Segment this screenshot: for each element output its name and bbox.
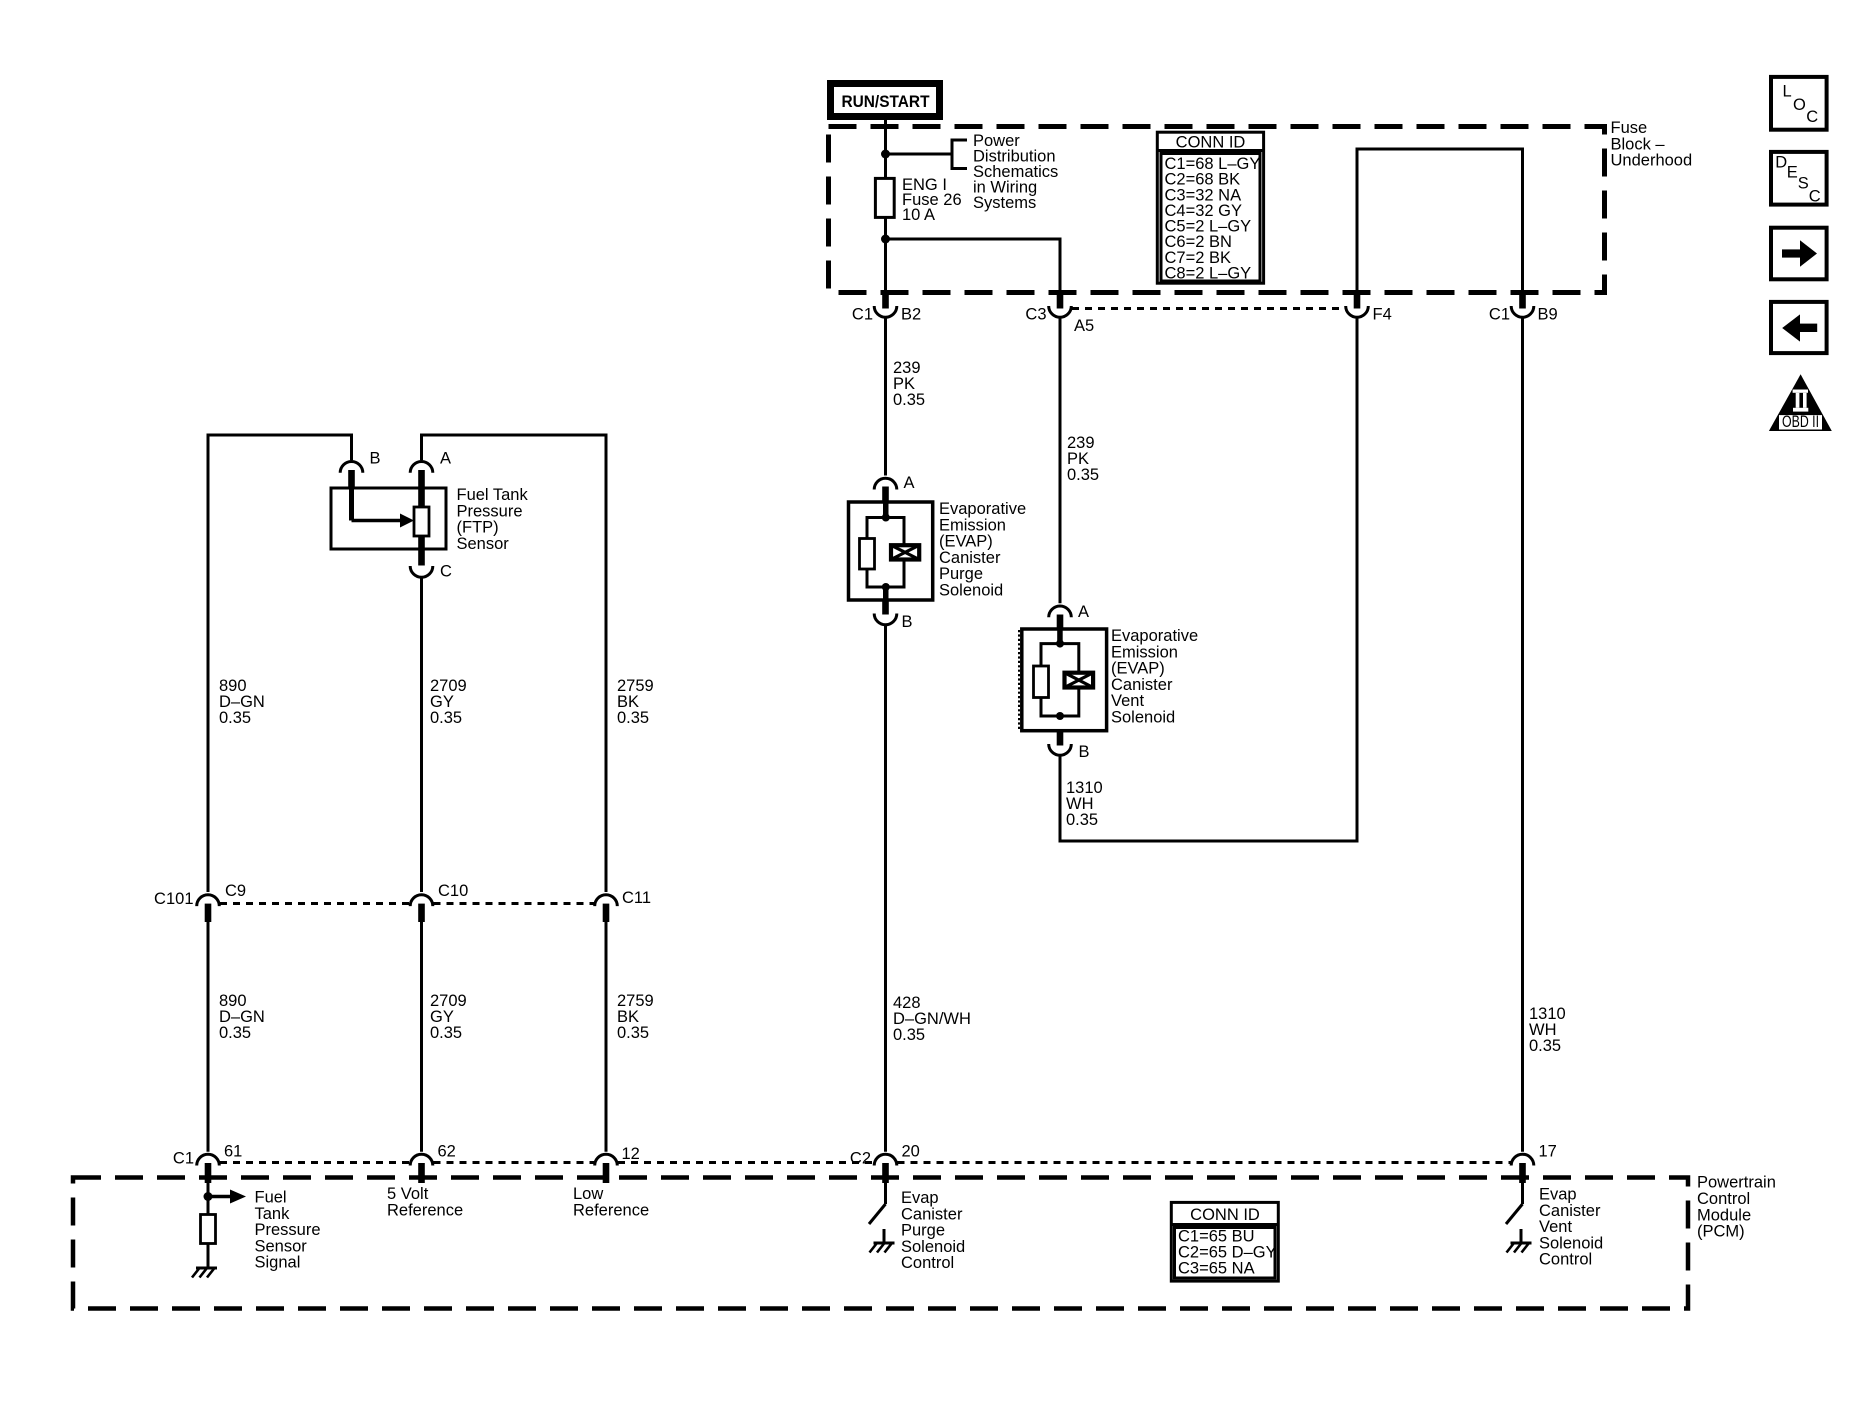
svg-text:0.35: 0.35 [617,1024,649,1042]
svg-text:Powertrain: Powertrain [1697,1174,1776,1192]
svg-text:C3=65 NA: C3=65 NA [1178,1260,1255,1278]
svg-text:D: D [1775,154,1787,172]
svg-text:Reference: Reference [573,1201,649,1219]
svg-text:O: O [1793,96,1806,114]
svg-text:Emission: Emission [1111,643,1178,661]
svg-text:F4: F4 [1373,306,1392,324]
svg-text:Tank: Tank [255,1205,291,1223]
svg-text:0.35: 0.35 [219,709,251,727]
svg-text:Solenoid: Solenoid [1111,709,1175,727]
svg-text:12: 12 [622,1145,640,1163]
svg-text:Fuse: Fuse [1611,119,1648,137]
svg-text:Module: Module [1697,1206,1751,1224]
svg-text:0.35: 0.35 [617,709,649,727]
svg-text:B: B [902,613,913,631]
svg-text:(EVAP): (EVAP) [939,533,993,551]
svg-text:Low: Low [573,1185,603,1203]
svg-text:0.35: 0.35 [1066,811,1098,829]
svg-text:Canister: Canister [1539,1202,1601,1220]
svg-text:Evap: Evap [1539,1186,1577,1204]
svg-text:Purge: Purge [901,1222,945,1240]
svg-text:62: 62 [438,1143,456,1161]
svg-text:C8=2 L–GY: C8=2 L–GY [1165,265,1252,283]
svg-text:17: 17 [1539,1143,1557,1161]
svg-text:0.35: 0.35 [1067,466,1099,484]
svg-text:C1: C1 [173,1150,194,1168]
svg-text:Pressure: Pressure [457,502,523,520]
svg-text:Canister: Canister [939,549,1001,567]
svg-text:Pressure: Pressure [255,1221,321,1239]
svg-text:5 Volt: 5 Volt [387,1185,429,1203]
svg-text:61: 61 [224,1143,242,1161]
svg-text:Purge: Purge [939,565,983,583]
svg-text:B: B [1079,743,1090,761]
svg-text:Vent: Vent [1111,692,1144,710]
svg-text:Control: Control [1539,1251,1592,1269]
svg-text:C3: C3 [1025,306,1046,324]
svg-text:C11: C11 [622,889,651,907]
svg-text:Emission: Emission [939,516,1006,534]
svg-text:Sensor: Sensor [255,1237,308,1255]
svg-text:(EVAP): (EVAP) [1111,660,1165,678]
svg-text:Sensor: Sensor [457,535,510,553]
svg-text:C9: C9 [225,882,246,900]
svg-text:C10: C10 [438,882,468,900]
svg-text:Fuel Tank: Fuel Tank [457,486,529,504]
svg-text:C: C [440,563,452,581]
svg-text:C1: C1 [852,306,873,324]
svg-text:B2: B2 [901,306,921,324]
svg-text:10 A: 10 A [902,206,935,224]
svg-text:C2: C2 [850,1150,871,1168]
svg-text:C: C [1806,108,1818,126]
svg-text:Evap: Evap [901,1189,939,1207]
svg-text:A: A [904,474,915,492]
svg-text:CONN ID: CONN ID [1190,1206,1260,1224]
svg-text:Signal: Signal [255,1254,301,1272]
svg-text:B: B [370,450,381,468]
svg-text:S: S [1798,175,1809,193]
svg-text:RUN/START: RUN/START [842,93,930,111]
svg-text:C1: C1 [1489,306,1510,324]
svg-text:CONN ID: CONN ID [1176,134,1246,152]
svg-text:Underhood: Underhood [1611,152,1693,170]
svg-text:Vent: Vent [1539,1218,1572,1236]
svg-text:Systems: Systems [973,194,1036,212]
svg-text:L: L [1783,83,1792,101]
svg-text:Control: Control [1697,1190,1750,1208]
svg-text:Evaporative: Evaporative [1111,627,1198,645]
svg-text:Block –: Block – [1611,135,1666,153]
svg-text:Canister: Canister [1111,676,1173,694]
svg-text:(FTP): (FTP) [457,519,499,537]
svg-text:0.35: 0.35 [893,391,925,409]
svg-text:E: E [1787,164,1798,182]
svg-text:Control: Control [901,1254,954,1272]
svg-text:Solenoid: Solenoid [901,1238,965,1256]
svg-text:0.35: 0.35 [430,1024,462,1042]
svg-text:0.35: 0.35 [1529,1037,1561,1055]
svg-text:C101: C101 [154,890,193,908]
svg-text:A: A [1078,603,1089,621]
svg-text:C: C [1809,188,1821,206]
svg-text:Reference: Reference [387,1201,463,1219]
svg-text:A5: A5 [1074,317,1094,335]
svg-text:Solenoid: Solenoid [939,582,1003,600]
svg-text:Canister: Canister [901,1205,963,1223]
svg-text:0.35: 0.35 [430,709,462,727]
svg-text:Evaporative: Evaporative [939,500,1026,518]
svg-text:20: 20 [902,1143,920,1161]
svg-text:A: A [440,450,451,468]
svg-text:(PCM): (PCM) [1697,1223,1745,1241]
svg-text:B9: B9 [1538,306,1558,324]
svg-text:Fuel: Fuel [255,1189,287,1207]
svg-text:OBD II: OBD II [1782,413,1819,431]
svg-text:0.35: 0.35 [219,1024,251,1042]
svg-text:Solenoid: Solenoid [1539,1234,1603,1252]
svg-text:0.35: 0.35 [893,1026,925,1044]
